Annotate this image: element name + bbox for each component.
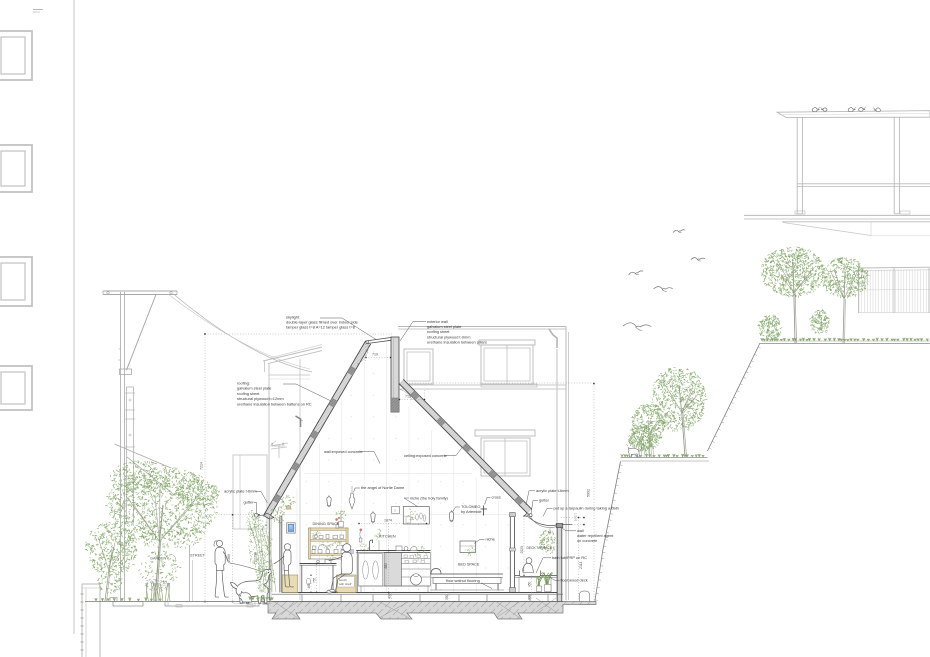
- svg-text:755: 755: [312, 577, 316, 583]
- svg-text:10-177: 10-177: [574, 512, 578, 521]
- svg-text:450: 450: [527, 581, 531, 587]
- svg-text:floor:walnut flooring: floor:walnut flooring: [446, 578, 480, 583]
- svg-text:by Artemide: by Artemide: [461, 509, 482, 514]
- svg-text:719: 719: [372, 353, 378, 357]
- svg-text:on concrete: on concrete: [577, 538, 597, 543]
- svg-text:430: 430: [387, 593, 391, 599]
- svg-text:STREET: STREET: [190, 554, 206, 558]
- svg-text:urethane insulation between ba: urethane insulation between battens on R…: [237, 401, 312, 406]
- svg-text:cross: cross: [492, 495, 501, 500]
- svg-text:niche (the holy family): niche (the holy family): [410, 495, 449, 500]
- svg-text:2020: 2020: [520, 546, 524, 554]
- svg-text:tamper glass t=8 A=12 tamper: tamper glass t=8 A=12 tamper glass t=8: [286, 325, 355, 330]
- svg-text:gutter: gutter: [244, 500, 255, 505]
- svg-text:GARDEN: GARDEN: [150, 557, 167, 561]
- svg-text:880: 880: [384, 563, 388, 569]
- svg-text:urethane insulation between pi: urethane insulation between pillars: [427, 340, 487, 345]
- svg-text:713: 713: [405, 395, 411, 399]
- svg-text:DECK TARRACE: DECK TARRACE: [527, 546, 553, 550]
- svg-text:wall:exposed concrete: wall:exposed concrete: [324, 449, 363, 454]
- svg-text:niche: niche: [486, 536, 495, 541]
- svg-text:acrylic plate t-6mm: acrylic plate t-6mm: [224, 489, 257, 494]
- svg-text:acrylic plate t-6mm: acrylic plate t-6mm: [536, 488, 569, 493]
- svg-text:floor:wood deck: floor:wood deck: [561, 577, 588, 582]
- svg-text:with shelf: with shelf: [339, 582, 352, 586]
- svg-text:gutter: gutter: [539, 498, 550, 503]
- svg-text:the angel of Nortle Dame: the angel of Nortle Dame: [361, 485, 404, 490]
- svg-text:ceiling:exposed concrete: ceiling:exposed concrete: [404, 453, 447, 458]
- svg-text:DINING SPACE: DINING SPACE: [313, 522, 340, 526]
- svg-text:1874: 1874: [384, 519, 392, 523]
- svg-text:SUPPOSE 000: SUPPOSE 000: [562, 602, 580, 606]
- svg-text:300: 300: [527, 594, 531, 600]
- svg-text:2111: 2111: [579, 562, 583, 569]
- svg-text:350: 350: [445, 594, 449, 600]
- svg-text:KITCHEN: KITCHEN: [379, 534, 396, 538]
- svg-text:7214: 7214: [200, 462, 204, 470]
- svg-text:5992: 5992: [587, 489, 591, 497]
- svg-text:bath tub/FRP on RC: bath tub/FRP on RC: [552, 555, 587, 560]
- svg-text:460: 460: [307, 583, 311, 589]
- svg-text:BED SPACE: BED SPACE: [458, 562, 480, 566]
- svg-text:put up a tarpaulin during taki: put up a tarpaulin during taking a bath: [554, 506, 619, 511]
